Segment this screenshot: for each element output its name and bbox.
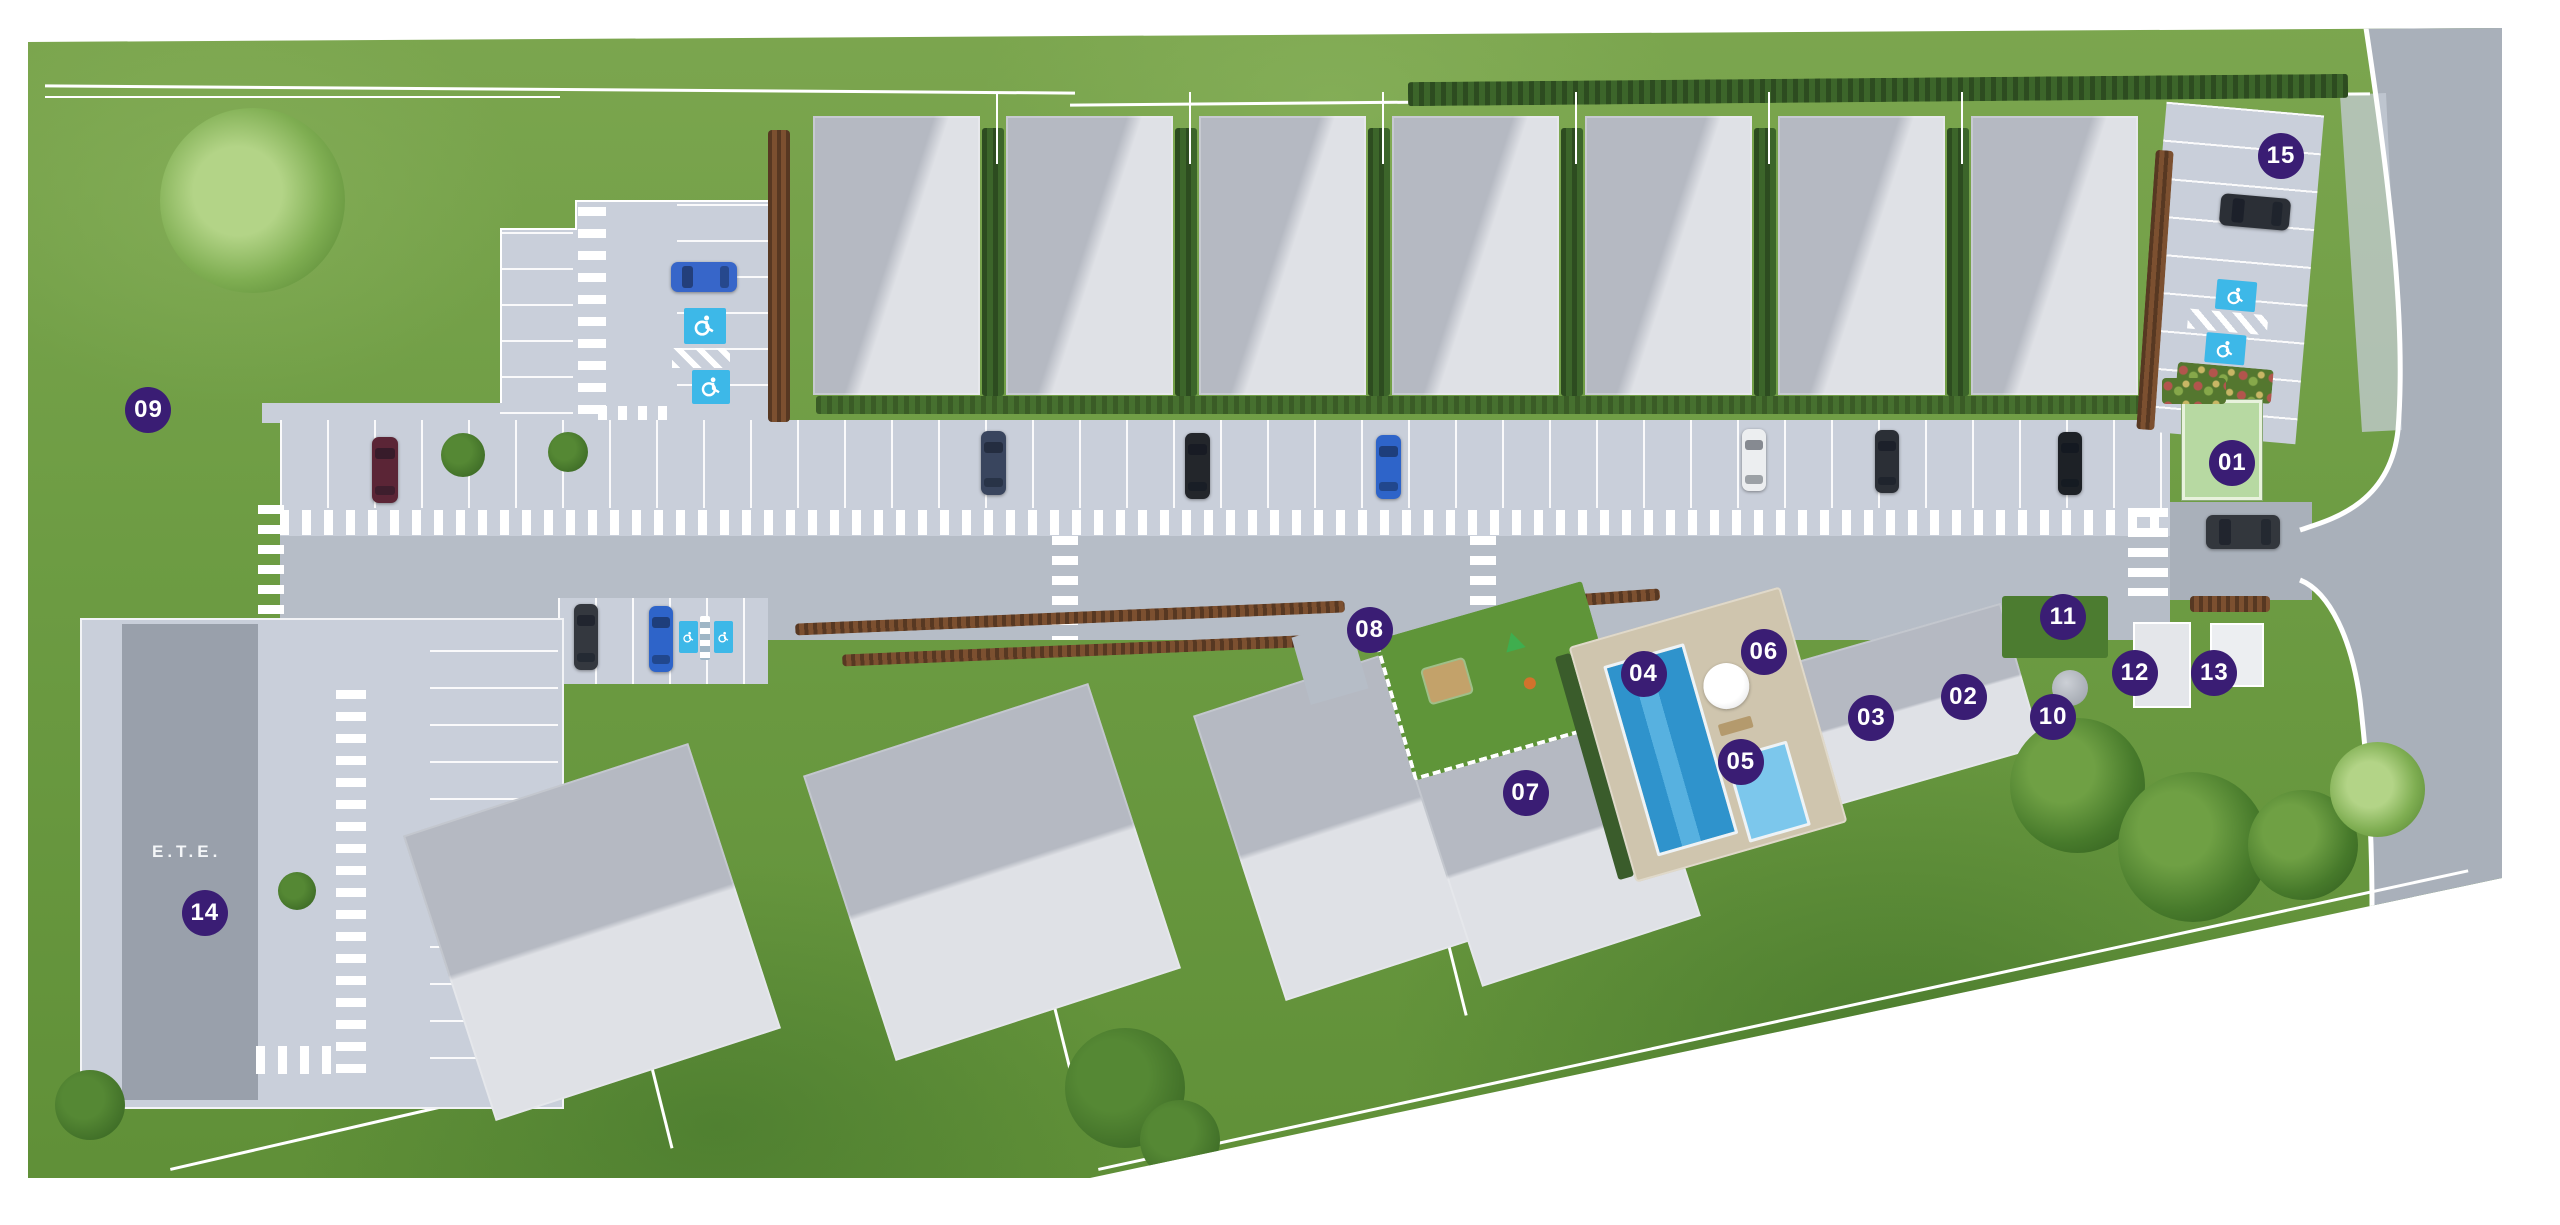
site-marker-10[interactable]: 10 xyxy=(2030,694,2076,740)
site-marker-11[interactable]: 11 xyxy=(2040,594,2086,640)
site-marker-15[interactable]: 15 xyxy=(2258,133,2304,179)
site-marker-01[interactable]: 01 xyxy=(2209,440,2255,486)
site-marker-09[interactable]: 09 xyxy=(125,387,171,433)
site-marker-07[interactable]: 07 xyxy=(1503,770,1549,816)
site-marker-05[interactable]: 05 xyxy=(1718,739,1764,785)
site-marker-04[interactable]: 04 xyxy=(1621,651,1667,697)
markers-layer: 010203040506070809101112131415 xyxy=(0,0,2560,1225)
site-plan-canvas: E.T.E. xyxy=(0,0,2560,1225)
site-marker-12[interactable]: 12 xyxy=(2112,650,2158,696)
site-marker-06[interactable]: 06 xyxy=(1741,629,1787,675)
site-marker-02[interactable]: 02 xyxy=(1941,674,1987,720)
site-marker-08[interactable]: 08 xyxy=(1347,607,1393,653)
site-marker-03[interactable]: 03 xyxy=(1848,695,1894,741)
site-marker-14[interactable]: 14 xyxy=(182,890,228,936)
site-marker-13[interactable]: 13 xyxy=(2191,650,2237,696)
